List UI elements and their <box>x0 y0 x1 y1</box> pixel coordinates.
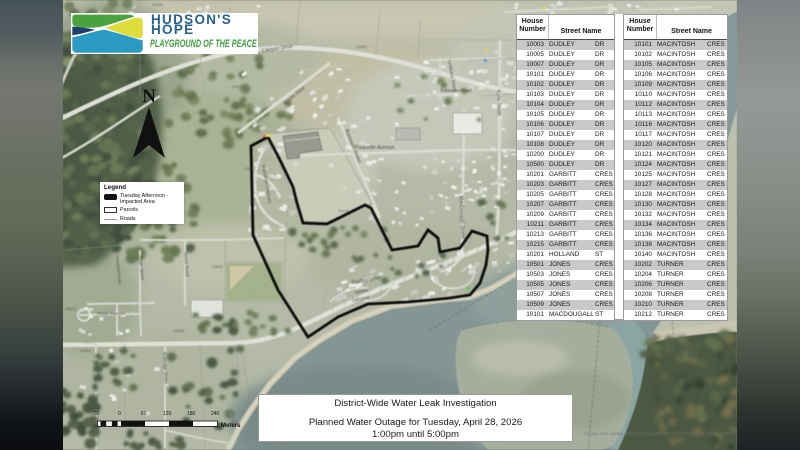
svg-text:13101: 13101 <box>338 209 349 213</box>
svg-text:10813: 10813 <box>65 307 76 311</box>
svg-text:10734: 10734 <box>152 3 163 7</box>
svg-text:Paquette Avenue: Paquette Avenue <box>355 145 395 151</box>
svg-text:Meters: Meters <box>221 423 241 429</box>
svg-text:C440: C440 <box>244 167 253 171</box>
svg-text:Rosa Avenue: Rosa Avenue <box>97 311 126 317</box>
svg-text:13181: 13181 <box>356 45 367 49</box>
svg-text:10501: 10501 <box>174 329 185 333</box>
svg-text:10010: 10010 <box>212 265 223 269</box>
svg-text:Kyllo Street: Kyllo Street <box>495 90 502 117</box>
svg-text:10503: 10503 <box>80 349 91 353</box>
svg-text:10715: 10715 <box>232 85 243 89</box>
